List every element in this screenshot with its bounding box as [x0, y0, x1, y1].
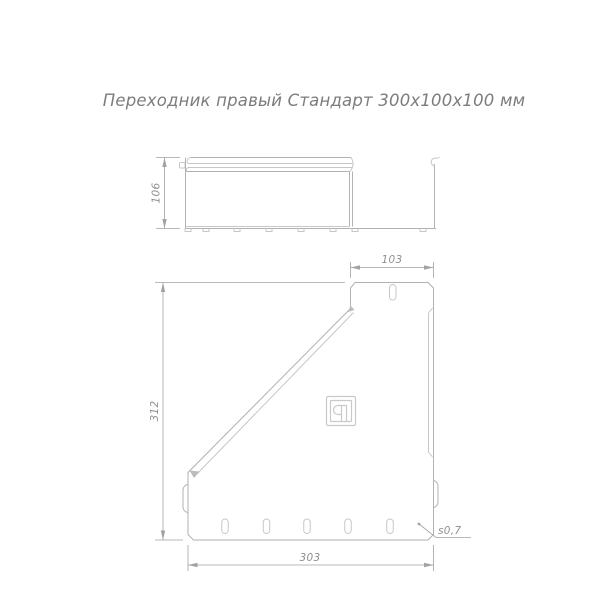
front-bend-line: [197, 313, 354, 475]
front-bottom-slot: [263, 519, 270, 534]
thickness-note-label: s0,7: [438, 525, 461, 537]
front-bend-upper-tip: [348, 306, 355, 313]
side-body-right-edge: [350, 172, 353, 227]
side-rolled-edge-cap: [350, 158, 353, 172]
dim-106-label: 106: [151, 183, 163, 204]
drawing-title: Переходник правый Стандарт 300х100х100 м…: [103, 91, 526, 110]
front-outline: [188, 283, 434, 541]
dim-303-label: 303: [300, 552, 321, 564]
front-bottom-slot: [387, 519, 394, 534]
manufacturer-logo-icon: [327, 397, 356, 426]
front-right-fold-line: [429, 308, 433, 457]
front-bend-lower-tip: [190, 471, 200, 479]
front-left-tab: [183, 485, 188, 513]
side-left-tab: [180, 163, 186, 169]
side-rolled-edge-curl: [186, 158, 191, 172]
technical-drawing: Переходник правый Стандарт 300х100х100 м…: [0, 0, 600, 600]
dim-312: 312: [149, 283, 345, 541]
dim-303: 303: [188, 545, 434, 571]
dim-312-label: 312: [149, 401, 161, 422]
front-slots: [222, 285, 396, 534]
dim-103: 103: [351, 254, 434, 278]
front-bottom-slot: [345, 519, 352, 534]
front-bottom-slot: [304, 519, 311, 534]
front-right-tab: [434, 481, 439, 508]
thickness-callout: s0,7: [418, 523, 471, 538]
side-right-hook: [431, 157, 439, 166]
front-view: 103 312 303 s0,7: [149, 254, 471, 571]
front-bottom-slot: [222, 519, 229, 534]
drawing-sheet: Переходник правый Стандарт 300х100х100 м…: [0, 0, 600, 600]
side-view: 106: [151, 157, 440, 232]
dim-103-label: 103: [382, 254, 403, 266]
front-top-slot: [390, 285, 397, 301]
dim-106: 106: [151, 158, 181, 229]
